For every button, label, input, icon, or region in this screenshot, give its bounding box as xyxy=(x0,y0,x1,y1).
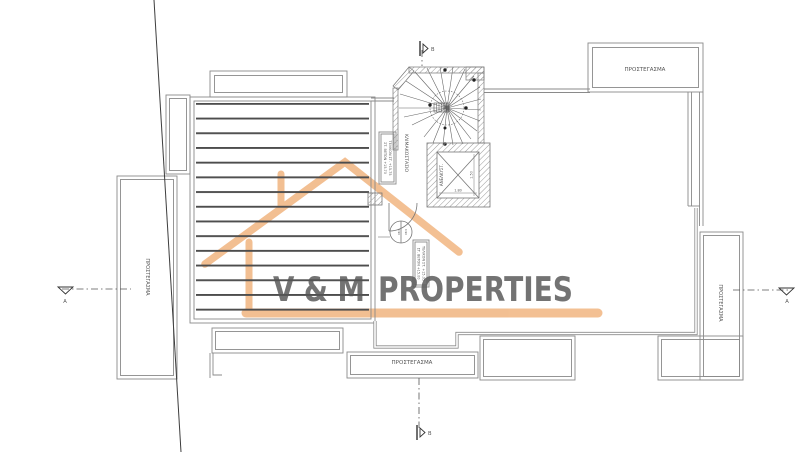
right-wall-strip xyxy=(688,92,703,226)
section-marker-a-right-icon xyxy=(779,288,794,295)
label-elevator: ΑΝΕΛΚΥΣΤ. xyxy=(439,164,444,186)
bottom-right-box xyxy=(658,336,743,380)
north-wall-piece xyxy=(371,98,394,101)
parapet-line xyxy=(484,89,590,93)
elevator-shaft xyxy=(427,143,490,207)
watermark-wordmark: V & M PROPERTIES xyxy=(273,270,573,310)
dim-level-right: 0.90 xyxy=(404,229,408,235)
stair-wall-right xyxy=(478,73,484,143)
stair-note-line2: ΣΤ. BETON +15.70 xyxy=(383,142,387,174)
left-narrow-box xyxy=(166,95,190,174)
step-detail xyxy=(210,353,222,378)
dim-level-left: 0.90 xyxy=(397,229,401,235)
section-letter-a-right: A xyxy=(785,299,789,305)
label-prostegasma-bottom: ΠΡΟΣΤΕΓΑΣΜΑ xyxy=(392,360,433,366)
top-box xyxy=(210,71,347,97)
plan-linework xyxy=(117,43,743,380)
recessed-box xyxy=(480,336,575,380)
watermark-name-right: PROPERTIES xyxy=(378,270,573,310)
stair-elevation-note: ΤΕΛΙΚΟΝ ΣΤ. +15.75 ΣΤ. BETON +15.70 xyxy=(383,140,392,176)
dim-elevator-depth: 1.50 xyxy=(470,171,474,179)
section-marker-b-top-icon xyxy=(420,41,428,56)
door-wall-stub xyxy=(368,193,382,205)
label-prostegasma-top-right: ΠΡΟΣΤΕΓΑΣΜΑ xyxy=(625,67,666,73)
bottom-strip-box xyxy=(212,328,343,353)
label-staircase: ΚΛΙΜΑΚΟΣΤΑΣΙΟ xyxy=(403,134,409,172)
section-letter-b-bottom: B xyxy=(428,431,432,437)
section-letter-a-left: A xyxy=(63,299,67,305)
floor-plan-canvas: ΠΡΟΣΤΕΓΑΣΜΑ ΠΡΟΣΤΕΓΑΣΜΑ ΠΡΟΣΤΕΓΑΣΜΑ ΠΡΟΣ… xyxy=(0,0,800,452)
section-marker-b-bottom-icon xyxy=(417,425,425,440)
floor-plan-page: ΠΡΟΣΤΕΓΑΣΜΑ ΠΡΟΣΤΕΓΑΣΜΑ ΠΡΟΣΤΕΓΑΣΜΑ ΠΡΟΣ… xyxy=(0,0,800,452)
dim-elevator-width: 1.80 xyxy=(454,189,462,193)
label-prostegasma-right: ΠΡΟΣΤΕΓΑΣΜΑ xyxy=(717,284,723,322)
section-marker-a-left-icon xyxy=(58,287,73,294)
label-prostegasma-left: ΠΡΟΣΤΕΓΑΣΜΑ xyxy=(144,258,150,296)
stair-note-line1: ΤΕΛΙΚΟΝ ΣΤ. +15.75 xyxy=(388,140,392,176)
section-letter-b-top: B xyxy=(431,47,435,53)
watermark-name-left: V & M xyxy=(273,270,365,310)
section-lines xyxy=(62,50,789,428)
